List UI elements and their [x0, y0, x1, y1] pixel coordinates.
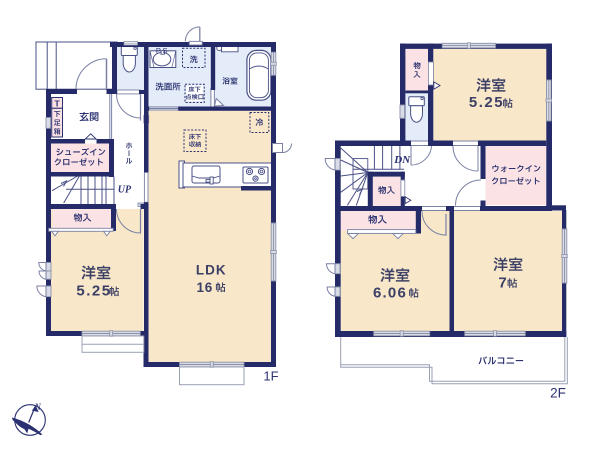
- svg-text:2F: 2F: [550, 385, 566, 400]
- svg-text:DN: DN: [393, 154, 411, 166]
- svg-text:N: N: [34, 403, 42, 413]
- svg-text:1F: 1F: [263, 369, 278, 384]
- svg-text:LDK: LDK: [196, 262, 227, 277]
- svg-text:UP: UP: [118, 185, 132, 196]
- svg-text:5.25: 5.25: [469, 94, 504, 111]
- svg-text:5.25: 5.25: [76, 283, 111, 300]
- svg-text:PS: PS: [156, 46, 169, 55]
- svg-text:7: 7: [498, 275, 506, 292]
- svg-text:16: 16: [196, 280, 213, 295]
- svg-text:T: T: [54, 98, 60, 108]
- svg-text:6.06: 6.06: [373, 284, 407, 301]
